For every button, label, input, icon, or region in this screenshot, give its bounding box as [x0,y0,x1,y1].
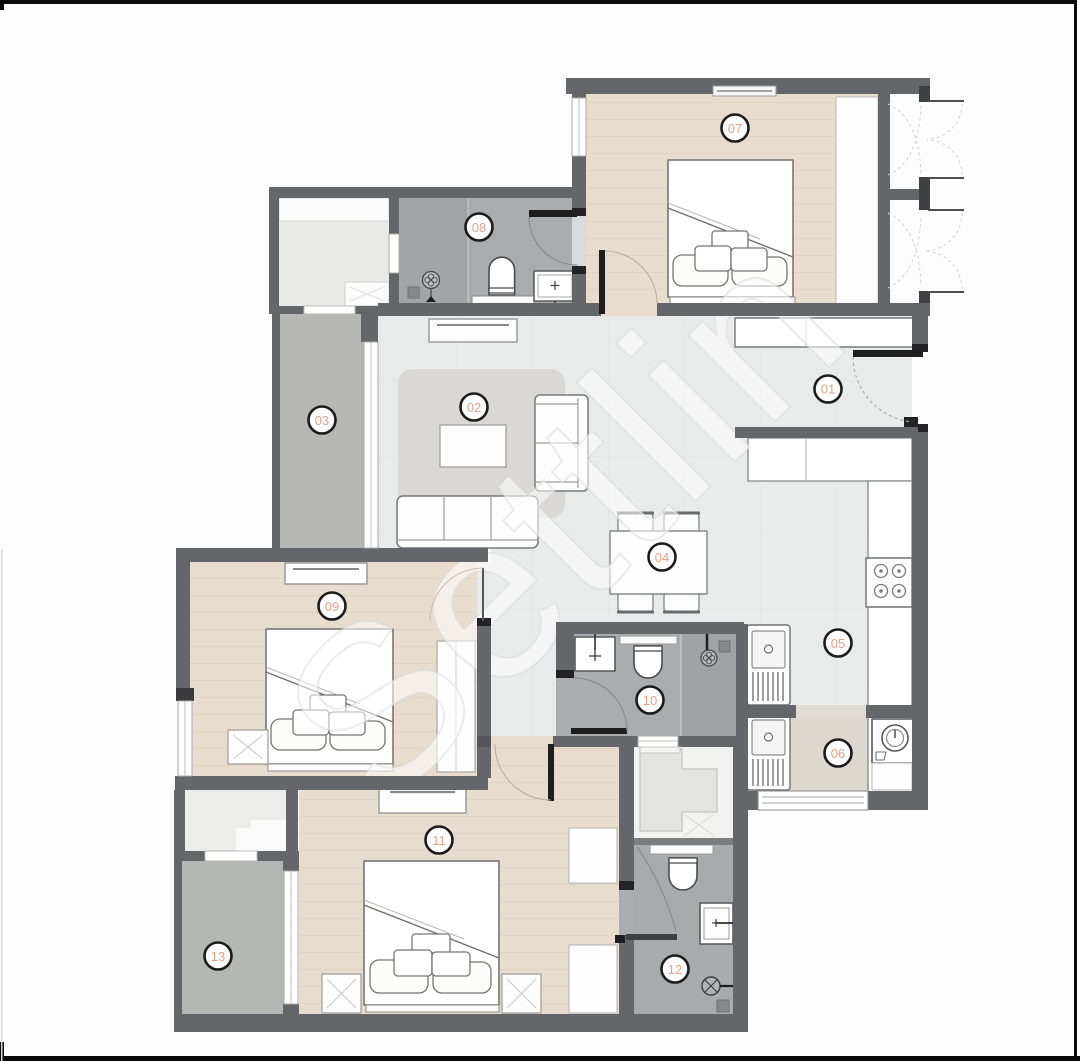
svg-text:12: 12 [668,962,682,977]
svg-text:10: 10 [643,693,657,708]
svg-text:11: 11 [432,833,446,848]
svg-text:05: 05 [831,636,845,651]
svg-text:08: 08 [472,220,486,235]
svg-text:01: 01 [821,382,835,397]
svg-text:07: 07 [728,121,742,136]
svg-text:09: 09 [325,599,339,614]
svg-text:06: 06 [831,746,845,761]
svg-text:02: 02 [467,400,481,415]
svg-text:13: 13 [211,949,225,964]
svg-text:04: 04 [655,550,669,565]
svg-text:03: 03 [315,413,329,428]
